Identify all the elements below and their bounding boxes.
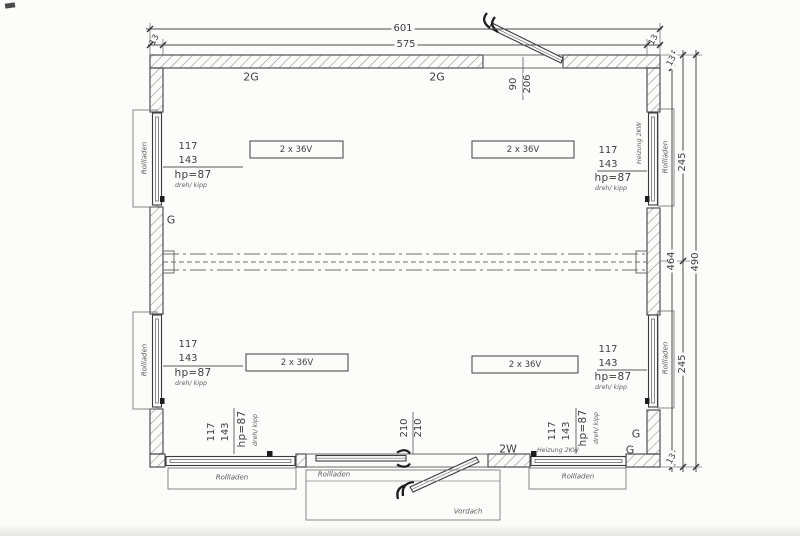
light-label: 2 x 36V xyxy=(281,359,313,368)
door-handle-icon xyxy=(397,450,410,453)
window-handle-icon xyxy=(160,398,165,404)
dim-inner-width: 575 xyxy=(394,40,417,50)
heater-label: Heizung 2KW xyxy=(637,122,643,164)
glazing-corner-lower: G xyxy=(626,445,635,456)
window-opening-label: dreh/ kipp xyxy=(594,412,600,444)
scan-artifact xyxy=(5,2,16,8)
light-label: 2 x 36V xyxy=(507,146,539,155)
bottom-door-height: 210 xyxy=(414,416,424,439)
scan-edge-shadow xyxy=(0,524,800,536)
ceiling-lights xyxy=(246,141,578,373)
window-parapet-label: hp=87 xyxy=(175,368,212,379)
dim-total-height: 490 xyxy=(691,250,701,273)
door-handle-icon xyxy=(484,13,490,28)
window-parapet-label: hp=87 xyxy=(175,170,212,181)
door-handle-icon xyxy=(397,464,410,467)
dim-half-height-top: 245 xyxy=(678,150,688,173)
floor-plan-drawing xyxy=(0,0,800,536)
window-width-label: 117 xyxy=(207,422,217,441)
window-height-label: 143 xyxy=(178,354,197,364)
window-width-label: 117 xyxy=(178,142,197,152)
window-width-label: 117 xyxy=(598,345,617,355)
window-handle-icon xyxy=(531,451,537,457)
glazing-top-center: 2G xyxy=(429,72,445,83)
window-parapet-label: hp=87 xyxy=(595,372,632,383)
window-width-label: 117 xyxy=(178,340,197,350)
window-handle-icon xyxy=(645,398,650,404)
window-parapet-label: hp=87 xyxy=(595,173,632,184)
shutter-label: Rollladen xyxy=(142,344,149,376)
bottom-door-glazing-label: 2W xyxy=(499,444,517,455)
window-height-label: 143 xyxy=(598,359,617,369)
window-parapet-label: hp=87 xyxy=(578,410,589,447)
window-width-label: 117 xyxy=(598,146,617,156)
bottom-door-shutter-label: Rollladen xyxy=(318,472,350,479)
canopy-label: Vordach xyxy=(454,509,483,516)
light-label: 2 x 36V xyxy=(280,146,312,155)
heater-label: Heizung 2KW xyxy=(537,448,579,454)
glazing-top-left: 2G xyxy=(243,72,259,83)
window-height-label: 143 xyxy=(221,422,231,441)
dimension-lines xyxy=(146,23,702,472)
shutter-label: Rollladen xyxy=(663,342,670,374)
light-label: 2 x 36V xyxy=(509,361,541,370)
window-opening-label: dreh/ kipp xyxy=(595,385,627,391)
window-height-label: 143 xyxy=(562,421,572,440)
window-height-label: 143 xyxy=(178,156,197,166)
dim-inner-height: 464 xyxy=(667,249,677,272)
dim-total-width: 601 xyxy=(391,24,414,34)
window-opening-label: dreh/ kipp xyxy=(175,381,207,387)
bottom-door-width: 210 xyxy=(400,416,410,439)
window-width-label: 117 xyxy=(548,421,558,440)
window-opening-label: dreh/ kipp xyxy=(595,186,627,192)
ridge-centerlines xyxy=(163,251,647,273)
walls xyxy=(150,55,660,467)
shutter-label: Rollladen xyxy=(562,474,594,481)
shutter-label: Rollladen xyxy=(663,141,670,173)
window-height-label: 143 xyxy=(598,160,617,170)
floor-plan-scan: 601 575 13 13 13 13 464 245 245 490 90 2… xyxy=(0,0,800,536)
window-opening-label: dreh/ kipp xyxy=(253,414,259,446)
shutter-label: Rollladen xyxy=(142,142,149,174)
window-handle-icon xyxy=(645,196,650,202)
window-opening-label: dreh/ kipp xyxy=(175,183,207,189)
glazing-corner-upper: G xyxy=(632,429,641,440)
top-door-height: 206 xyxy=(523,72,533,95)
window-handle-icon xyxy=(160,196,165,202)
top-door-width: 90 xyxy=(509,76,519,93)
window-handle-icon xyxy=(267,451,273,457)
shutter-label: Rollladen xyxy=(216,475,248,482)
glazing-left-mid: G xyxy=(167,215,176,226)
window-parapet-label: hp=87 xyxy=(237,411,248,448)
dim-half-height-bottom: 245 xyxy=(678,352,688,375)
